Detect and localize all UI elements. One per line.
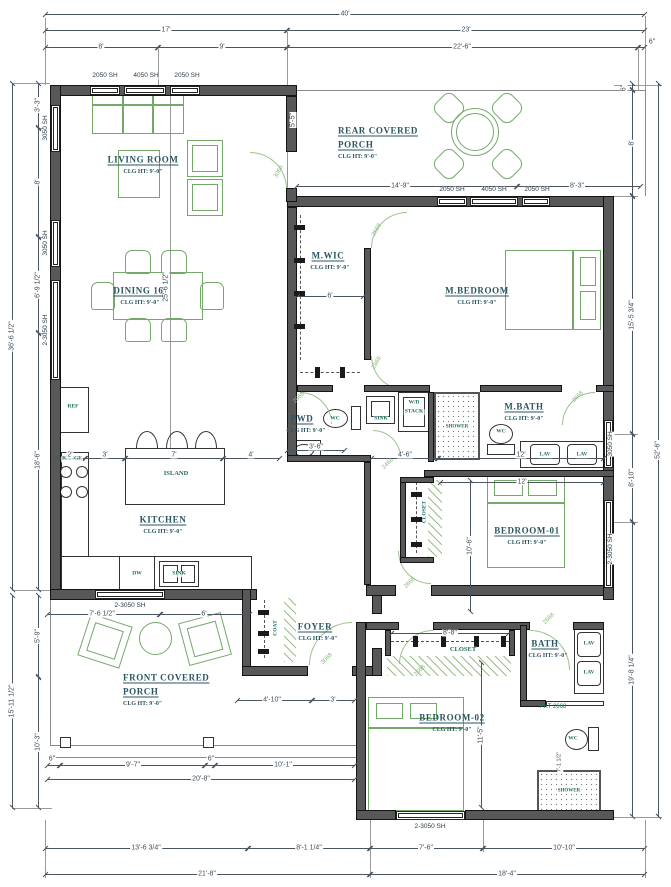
hanger-tick	[294, 324, 305, 329]
window-label: 3050 SH	[43, 230, 50, 255]
wall	[424, 470, 614, 477]
window-label: 4050 SH	[133, 73, 158, 80]
room-clg: CLG HT: 9'-0"	[432, 727, 471, 733]
dim-label: 6"	[648, 39, 656, 46]
room-title-mbedroom: M.BEDROOM	[445, 287, 509, 296]
dim-label: 52'-6"	[655, 440, 662, 460]
dim-label: 10'-10"	[552, 845, 576, 852]
room-title-bath: BATH	[531, 640, 558, 649]
window	[470, 197, 518, 206]
dim-label: 3'	[101, 452, 108, 459]
wall	[400, 477, 434, 483]
porch-post	[60, 737, 71, 748]
room-clg: CLG HT: 9'-0"	[507, 540, 546, 546]
wall	[596, 385, 614, 392]
room-title-foyer: FOYER	[298, 623, 333, 632]
dim-label: 21'-8"	[197, 871, 217, 878]
dim-label: 6'-9 1/2"	[35, 271, 42, 299]
room-clg: CLG HT: 9'-0"	[143, 529, 182, 535]
dw-label: DW	[131, 571, 142, 577]
sofa-back-line	[92, 104, 184, 106]
toilet-tank	[487, 444, 515, 455]
dim-label: 6'	[326, 293, 333, 300]
dining-chair	[161, 318, 187, 342]
bifold-door	[428, 480, 442, 557]
shower-label: SHOWER	[557, 789, 582, 794]
wall	[287, 455, 371, 462]
closet-rod	[300, 215, 301, 360]
room-title-kitchen: KITCHEN	[140, 516, 187, 525]
window-label: 3050 SH	[43, 115, 50, 140]
pillow	[580, 257, 596, 286]
hanger-tick	[340, 367, 345, 378]
dining-chair	[125, 250, 151, 274]
window	[51, 220, 60, 267]
porch-side-table	[139, 622, 172, 655]
wall	[286, 188, 297, 202]
dim-label: 10'-3"	[35, 732, 42, 752]
wall	[242, 666, 308, 676]
dim-label: 7'-6"	[418, 845, 434, 852]
room-title-living: LIVING ROOM	[108, 156, 179, 165]
dim-label: 4'	[247, 452, 254, 459]
dim-label: 8'	[97, 44, 104, 51]
dim-label: 6"	[207, 756, 215, 763]
sofa-cushion-line	[122, 95, 124, 133]
dim-label: 12'	[516, 479, 527, 486]
window	[170, 86, 200, 95]
window	[124, 86, 166, 95]
door-label: 2468	[381, 457, 395, 471]
dim-label: 7'-1 1/2"	[557, 751, 563, 773]
hanger-tick	[411, 492, 422, 497]
extension-line	[645, 820, 646, 878]
dim-label: 22'-6"	[452, 44, 472, 51]
floor-plan: 40' 17' 23' 8' 9' 22'-6" 6" 13'-6 3/4" 8…	[0, 0, 671, 887]
window	[396, 811, 465, 820]
room-clg: CLG HT: 9'-0"	[310, 265, 349, 271]
dim-label: 2'	[66, 452, 73, 459]
wc-label: WC	[495, 429, 506, 435]
dim-label: 3'-6"	[308, 444, 324, 451]
closet-label: CLOSET	[449, 647, 477, 654]
stool	[166, 431, 188, 448]
window	[437, 197, 467, 206]
wall	[287, 207, 297, 462]
room-title-mwic: M.WIC	[312, 252, 345, 261]
room-clg: CLG HT: 9'-0"	[298, 636, 337, 642]
wd-label: W/D	[408, 400, 421, 406]
wc-label: WC	[567, 736, 578, 742]
burner-icon	[76, 486, 88, 498]
window-label: 2050 SH	[174, 73, 199, 80]
hanger-tick	[294, 225, 305, 230]
wall	[364, 248, 371, 360]
wd-label-2: STACK	[404, 409, 425, 415]
dim-label: 4'-10"	[262, 697, 282, 704]
window	[95, 590, 165, 599]
burner-icon	[76, 466, 88, 478]
coat-label: COAT	[273, 619, 279, 636]
pocket-door-label: PKT 2668	[540, 704, 567, 710]
wall	[520, 625, 527, 707]
armchair-seat	[192, 145, 218, 172]
hanger-tick	[501, 636, 506, 647]
dim-label: 5'-5"	[290, 112, 297, 128]
armchair-seat	[192, 184, 218, 211]
wall	[242, 589, 251, 676]
burner-icon	[60, 486, 72, 498]
extension-line	[158, 49, 159, 85]
blanket-line	[572, 250, 574, 330]
dim-label: 10'-6"	[467, 536, 474, 556]
dim-label: 8'-3"	[569, 183, 585, 190]
door-swing	[530, 630, 570, 670]
stool	[195, 431, 217, 448]
blanket-line	[487, 502, 565, 504]
hanger-tick	[294, 258, 305, 263]
dim-label: 8'-1 1/4"	[295, 845, 323, 852]
window-label: 2-3050 SH	[608, 533, 615, 564]
dim-label: 4'-6"	[397, 452, 413, 459]
porch-edge	[50, 600, 51, 745]
dim-label: 8'	[35, 178, 42, 185]
dim-label: 12'	[515, 452, 526, 459]
hanger-tick	[258, 610, 269, 615]
dim-label: 6"	[48, 756, 56, 763]
lav-label: LAV	[576, 452, 589, 458]
porch-edge	[296, 90, 646, 91]
room-clg: CLG HT: 9'-0"	[528, 653, 567, 659]
room-title-pwd: PWD	[291, 415, 314, 424]
extension-line	[12, 808, 52, 809]
dim-label: 14'-9"	[390, 183, 410, 190]
wall	[428, 392, 434, 462]
window-label: 2-3050 SH	[414, 824, 445, 831]
wall	[509, 630, 515, 656]
dim-label: 6"	[621, 84, 628, 92]
dining-table	[113, 272, 203, 320]
room-clg: CLG HT: 9'-0"	[286, 428, 325, 434]
burner-icon	[60, 466, 72, 478]
window	[51, 280, 60, 380]
wall	[356, 622, 366, 820]
porch-table-inner	[456, 113, 494, 151]
ref-label: REF	[67, 404, 80, 410]
room-title-rear-porch: REAR COVERED	[338, 127, 418, 136]
door-label: 2668	[542, 612, 556, 626]
hanger-tick	[413, 636, 418, 647]
hanger-tick	[411, 542, 422, 547]
dim-label: 8'-8"	[442, 630, 458, 637]
wall	[364, 462, 371, 585]
closet-label: CLOSET	[422, 500, 428, 524]
dim-label: 15'-11 1/2"	[9, 684, 16, 719]
refrigerator	[57, 387, 89, 433]
room-title-rear-porch-2: PORCH	[338, 141, 374, 150]
wall	[465, 810, 614, 820]
extension-line	[12, 590, 50, 591]
dim-label: 8'-10"	[629, 468, 636, 488]
hanger-tick	[441, 636, 446, 647]
room-title-bedroom2: BEDROOM-02	[419, 714, 485, 723]
porch-post	[203, 737, 214, 748]
sofa-cushion-line	[152, 95, 154, 133]
window-label: 2050 SH	[524, 187, 549, 194]
counter-bottom	[61, 556, 252, 590]
extension-line	[12, 83, 50, 84]
shower-label: SHOWER	[445, 425, 470, 430]
dim-label: 6'	[200, 611, 207, 618]
dim-label: 3'-3"	[35, 97, 42, 113]
wall	[356, 810, 396, 820]
dim-label: 17'	[160, 27, 171, 34]
room-title-bedroom1: BEDROOM-01	[494, 527, 560, 536]
dining-chair	[91, 282, 115, 310]
window-label: 2-3050 SH	[114, 603, 145, 610]
window	[522, 197, 550, 206]
room-title-dining: DINING 16'	[113, 287, 166, 296]
dim-label: 36'-6 1/2"	[9, 320, 16, 352]
lav-label: LAV	[583, 641, 596, 647]
dim-label: 3'	[329, 697, 336, 704]
room-clg: CLG HT: 9'-0"	[120, 300, 159, 306]
pillow	[580, 291, 596, 320]
window-label: 2-3050 SH	[43, 314, 50, 345]
closet-rod	[300, 372, 360, 373]
porch-chair	[489, 146, 526, 183]
dining-chair	[125, 318, 151, 342]
dim-label: 7'	[170, 452, 177, 459]
room-title-mbath: M.BATH	[504, 403, 543, 412]
room-clg: CLG HT: 9'-0"	[457, 300, 496, 306]
room-title-front-porch: FRONT COVERED	[123, 674, 209, 683]
bifold-door	[284, 598, 296, 662]
porch-edge	[50, 757, 358, 758]
hanger-tick	[258, 631, 269, 636]
sink-label: SINK	[373, 416, 388, 422]
dim-label: 20'-8"	[191, 776, 211, 783]
window-label: 2050 SH	[439, 187, 464, 194]
wc-label: WC	[329, 416, 340, 422]
dim-label: 25'-6 1/2"	[163, 271, 170, 303]
sink-label: SINK	[171, 571, 186, 577]
dim-label: 18'-4"	[497, 871, 517, 878]
door-label: 2668	[403, 576, 417, 590]
dim-label: 15'-5 3/4"	[629, 299, 636, 331]
sofa	[92, 94, 184, 134]
window-label: 4050 SH	[481, 187, 506, 194]
room-clg: CLG HT: 9'-0"	[504, 416, 543, 422]
dim-line	[638, 47, 645, 48]
wall	[364, 385, 430, 392]
window	[90, 86, 120, 95]
extension-line	[614, 817, 662, 818]
stool	[136, 431, 158, 448]
dim-label: 23'	[460, 27, 471, 34]
room-clg: CLG HT: 9'-0"	[338, 154, 377, 160]
lav-label: LAV	[583, 670, 596, 676]
wall	[480, 385, 562, 392]
dim-label: 11'-5"	[478, 725, 485, 744]
window-label: 3050 SH	[608, 431, 615, 456]
wall	[366, 585, 396, 596]
dim-label: 9'	[218, 44, 225, 51]
dim-label: 7'-6 1/2"	[88, 611, 116, 618]
wall	[366, 622, 399, 630]
wall	[573, 622, 604, 630]
room-title-front-porch-2: PORCH	[123, 688, 159, 697]
dim-label: 10'-1"	[273, 762, 293, 769]
hanger-tick	[315, 367, 320, 378]
pillow	[376, 703, 403, 719]
dim-label: 8'	[629, 139, 636, 146]
wall	[372, 648, 382, 676]
dining-chair	[200, 282, 224, 310]
toilet-tank	[351, 406, 361, 430]
wall	[297, 385, 333, 392]
room-clg: CLG HT: 9'-0"	[123, 169, 162, 175]
porch-edge	[645, 90, 646, 196]
dim-label: 9'-7"	[125, 762, 141, 769]
extension-line	[638, 49, 639, 90]
room-clg: CLG HT: 9'-0"	[123, 701, 162, 707]
dim-label: 13'-6 3/4"	[130, 845, 162, 852]
wall	[400, 477, 406, 563]
dim-label: 18'-6"	[35, 450, 42, 470]
island-label: ISLAND	[163, 471, 190, 478]
window	[51, 105, 60, 152]
wall	[400, 557, 434, 563]
dim-label: 19'-8 1/4"	[629, 654, 636, 686]
toilet-tank	[588, 727, 599, 751]
dim-label: 40'	[339, 11, 350, 18]
dim-label: 5'-9"	[35, 628, 42, 644]
wall	[431, 585, 604, 596]
lav-label: LAV	[539, 452, 552, 458]
hanger-tick	[258, 649, 269, 654]
window-label: 2050 SH	[92, 73, 117, 80]
